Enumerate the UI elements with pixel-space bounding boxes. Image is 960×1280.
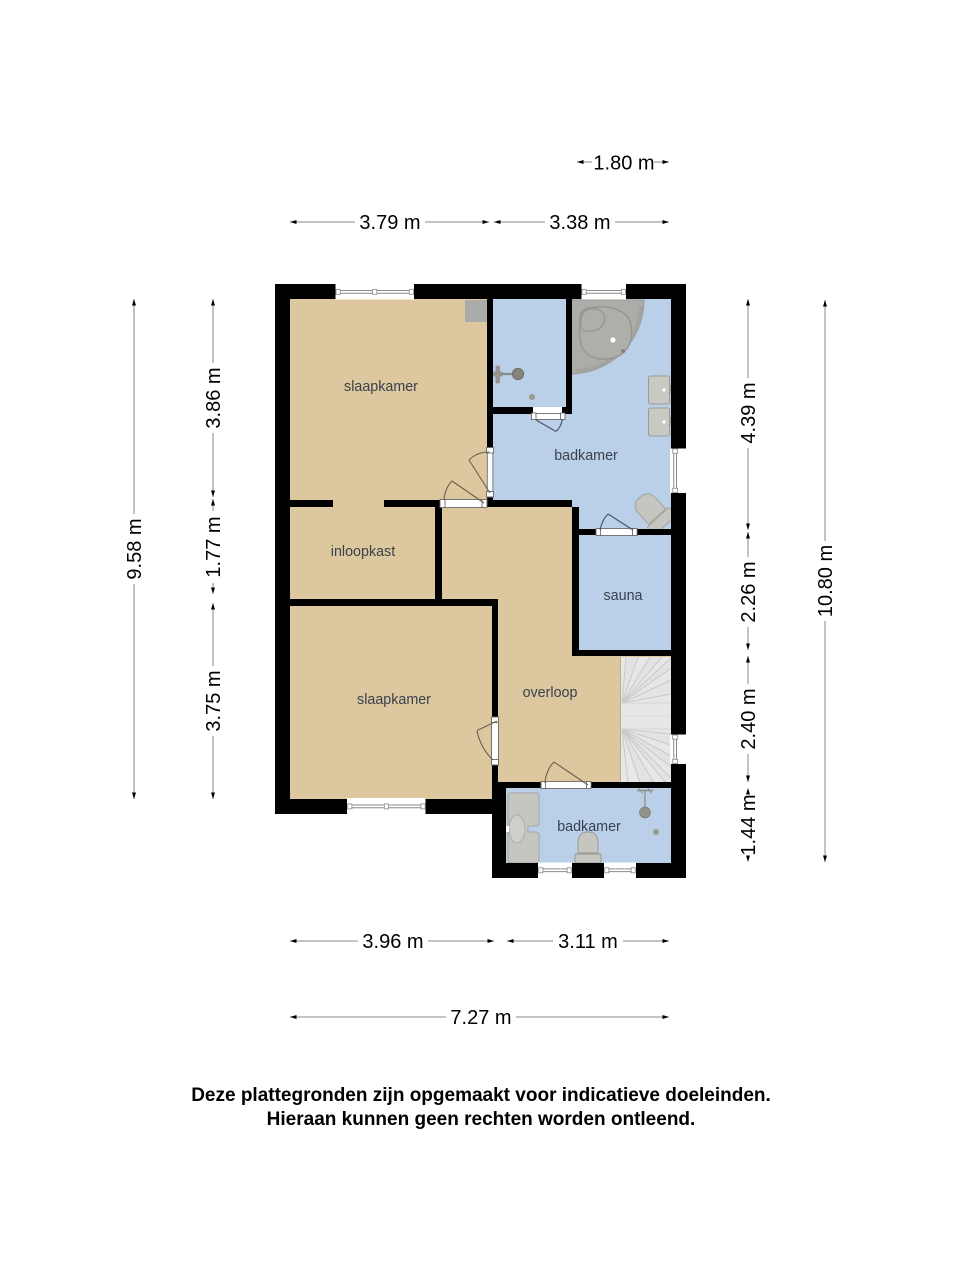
svg-text:badkamer: badkamer [554,448,618,464]
svg-text:9.58 m: 9.58 m [124,518,146,579]
svg-text:sauna: sauna [604,588,643,604]
svg-text:3.86 m: 3.86 m [203,367,225,428]
svg-text:3.11 m: 3.11 m [558,931,618,953]
svg-text:7.27 m: 7.27 m [450,1007,511,1029]
svg-text:inloopkast: inloopkast [331,544,395,560]
svg-text:3.75 m: 3.75 m [203,670,225,731]
svg-text:Hieraan kunnen geen rechten wo: Hieraan kunnen geen rechten worden ontle… [267,1109,696,1130]
svg-text:1.80 m: 1.80 m [593,153,654,175]
svg-text:slaapkamer: slaapkamer [357,692,431,708]
svg-text:3.96 m: 3.96 m [362,931,423,953]
svg-text:overloop: overloop [523,685,578,701]
svg-text:slaapkamer: slaapkamer [344,379,418,395]
svg-text:2.26 m: 2.26 m [738,561,760,622]
svg-text:1.44 m: 1.44 m [738,794,760,855]
svg-text:badkamer: badkamer [557,819,621,835]
svg-text:2.40 m: 2.40 m [738,688,760,749]
svg-text:3.79 m: 3.79 m [359,212,420,234]
svg-text:1.77 m: 1.77 m [203,516,225,577]
svg-text:Deze plattegronden zijn opgema: Deze plattegronden zijn opgemaakt voor i… [191,1085,771,1106]
svg-text:10.80 m: 10.80 m [815,545,837,617]
svg-text:4.39 m: 4.39 m [738,382,760,443]
svg-text:3.38 m: 3.38 m [549,212,610,234]
